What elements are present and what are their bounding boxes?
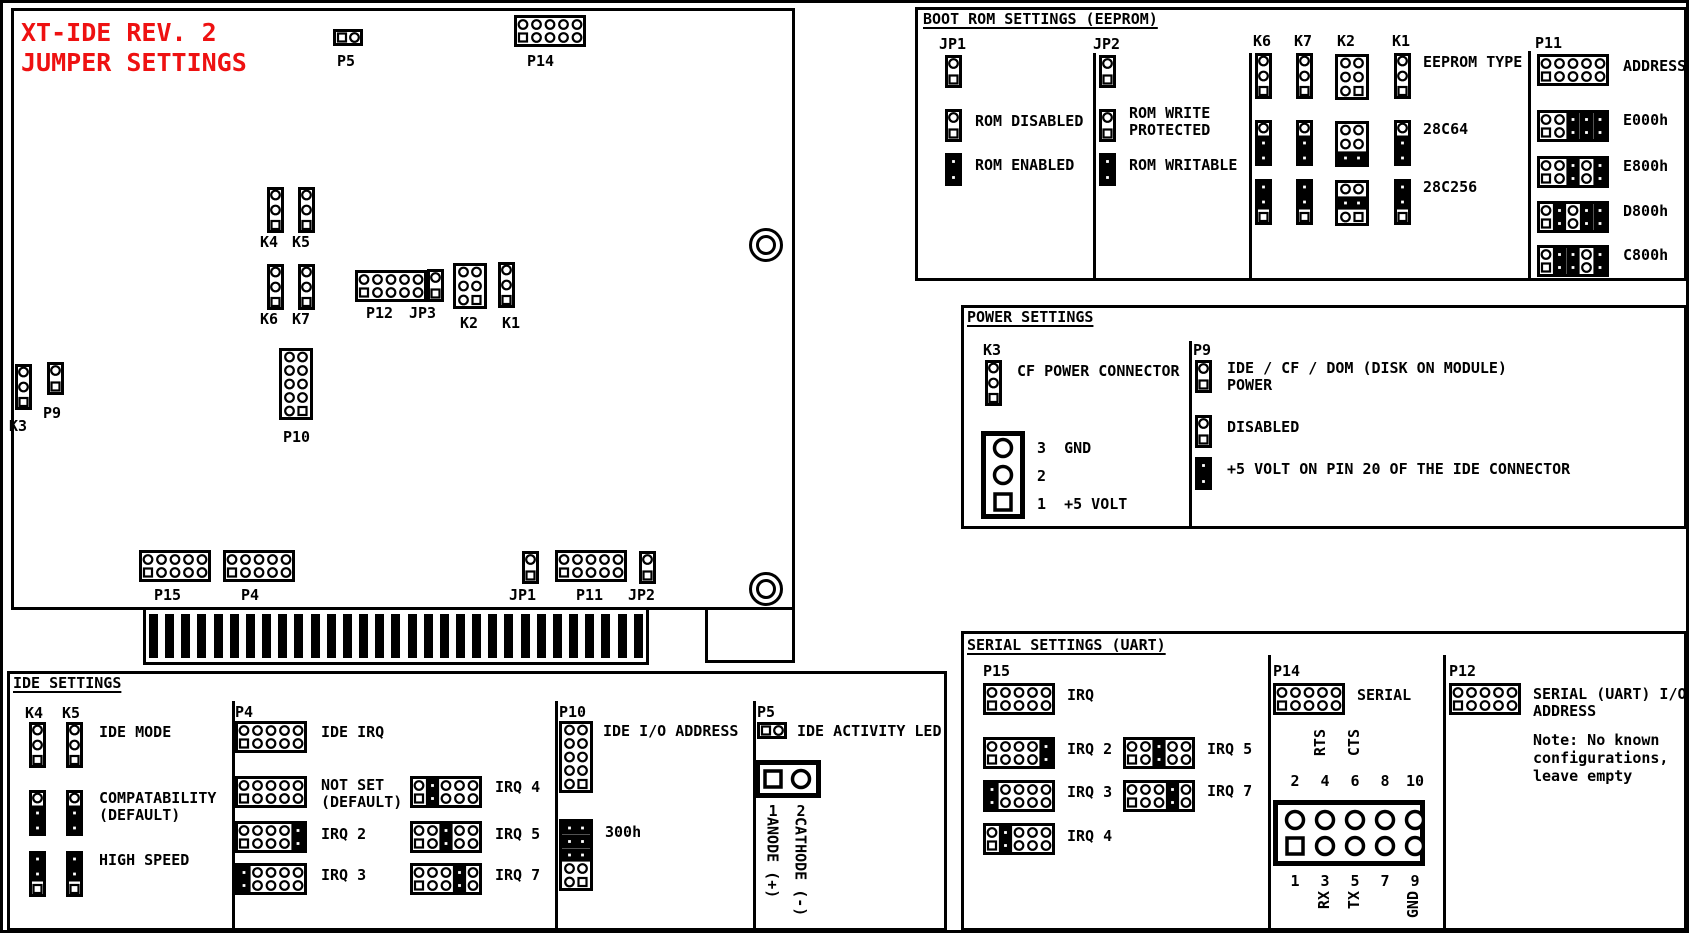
- ide-led-connector: [755, 760, 821, 798]
- boot-p11-c800h: [1537, 245, 1609, 277]
- board-header-p10: [279, 348, 313, 420]
- serial-pin-9: 9: [1410, 873, 1419, 890]
- edge-connector-tooth: [601, 614, 610, 658]
- serial-p14-connector: [1273, 800, 1425, 866]
- ide-p4-header-svg: [235, 721, 307, 753]
- edge-connector-tooth: [488, 614, 497, 658]
- ide-p4-irq4: [410, 776, 482, 808]
- serial-p15-irq5-svg: [1123, 737, 1195, 769]
- edge-connector-tooth: [504, 614, 513, 658]
- boot-label-eeprom-type: EEPROM TYPE: [1423, 54, 1522, 71]
- board-label-p9: P9: [43, 405, 61, 422]
- serial-p15-header-svg: [983, 683, 1055, 715]
- serial-label-irq5: IRQ 5: [1207, 741, 1252, 758]
- serial-p15-irq4-svg: [983, 823, 1055, 855]
- serial-label-gnd: GND: [1405, 891, 1422, 918]
- boot-jp2-writable: [1099, 153, 1116, 186]
- boot-jp2-write-protected-svg: [1099, 109, 1116, 142]
- boot-jp2-writable-svg: [1099, 153, 1116, 186]
- serial-pin-3: 3: [1320, 873, 1329, 890]
- power-label-pin1-5v: 1 +5 VOLT: [1037, 496, 1127, 513]
- serial-p15-irq7-svg: [1123, 780, 1195, 812]
- boot-k6-header-svg: [1255, 53, 1272, 99]
- board-label-p15: P15: [154, 587, 181, 604]
- board-header-p14: [514, 15, 586, 47]
- edge-connector-tooth: [343, 614, 352, 658]
- board-header-p5: [333, 29, 363, 46]
- boot-jp1-header-svg: [945, 55, 962, 88]
- boot-k7-header: [1296, 53, 1313, 99]
- boot-label-rom-enabled: ROM ENABLED: [975, 157, 1074, 174]
- serial-p12-header-svg: [1449, 683, 1521, 715]
- board-header-k6: [267, 264, 284, 310]
- board-header-k7-svg: [298, 264, 315, 310]
- edge-connector-tooth: [553, 614, 562, 658]
- serial-note-line2: configurations,: [1533, 750, 1668, 767]
- boot-p11-d800h: [1537, 201, 1609, 233]
- boot-label-jp1: JP1: [939, 36, 966, 53]
- board-header-p15: [139, 550, 211, 582]
- board-label-k4: K4: [260, 234, 278, 251]
- serial-pin-2: 2: [1290, 773, 1299, 790]
- ide-label-cathode: CATHODE (-): [792, 817, 809, 916]
- ide-p4-irq3-svg: [235, 863, 307, 895]
- boot-p11-e000h: [1537, 110, 1609, 142]
- serial-p15-irq3-svg: [983, 780, 1055, 812]
- power-p9-5v-svg: [1195, 457, 1212, 490]
- board-label-k3: K3: [9, 418, 27, 435]
- serial-p15-irq5: [1123, 737, 1195, 769]
- power-p9-disabled: [1195, 415, 1212, 448]
- power-p9-disabled-svg: [1195, 415, 1212, 448]
- ide-label-activity-led: IDE ACTIVITY LED: [797, 723, 942, 740]
- ide-k4-compat: [29, 790, 46, 836]
- boot-div-3: [1528, 51, 1531, 278]
- boot-p11-d800h-svg: [1537, 201, 1609, 233]
- serial-div-1: [1268, 655, 1271, 928]
- serial-label-p12: P12: [1449, 663, 1476, 680]
- board-header-p12-svg: [355, 270, 427, 302]
- boot-k1-header: [1394, 53, 1411, 99]
- edge-connector-tooth: [391, 614, 400, 658]
- boot-k6-28c64: [1255, 120, 1272, 166]
- boot-jp1-rom-enabled-svg: [945, 153, 962, 186]
- serial-label-irq7: IRQ 7: [1207, 783, 1252, 800]
- serial-pin-4: 4: [1320, 773, 1329, 790]
- ide-k5-compat: [66, 790, 83, 836]
- boot-p11-c800h-svg: [1537, 245, 1609, 277]
- board-header-jp1: [522, 551, 539, 584]
- boot-label-c800h: C800h: [1623, 247, 1668, 264]
- edge-connector-tooth: [165, 614, 174, 658]
- power-cf-connector: [981, 431, 1025, 519]
- board-header-k7: [298, 264, 315, 310]
- serial-div-2: [1443, 655, 1446, 928]
- ide-p4-irq3: [235, 863, 307, 895]
- power-label-pin3-gnd: 3 GND: [1037, 440, 1091, 457]
- boot-label-k1: K1: [1392, 33, 1410, 50]
- ide-label-ide-irq: IDE IRQ: [321, 724, 384, 741]
- serial-label-irq3: IRQ 3: [1067, 784, 1112, 801]
- ide-p4-irq7-svg: [410, 863, 482, 895]
- edge-connector-tooth: [424, 614, 433, 658]
- board-header-k4: [267, 187, 284, 233]
- board-header-jp1-svg: [522, 551, 539, 584]
- edge-connector-tooth: [408, 614, 417, 658]
- board-label-jp3: JP3: [409, 305, 436, 322]
- serial-panel-title: SERIAL SETTINGS (UART): [967, 637, 1166, 654]
- boot-label-28c256: 28C256: [1423, 179, 1477, 196]
- ide-p5-header-svg: [757, 722, 787, 739]
- ide-k5-header-svg: [66, 722, 83, 768]
- ide-k5-compat-svg: [66, 790, 83, 836]
- ide-p10-300h-svg: [559, 819, 593, 891]
- boot-jp2-write-protected: [1099, 109, 1116, 142]
- mounting-hole-bottom-inner: [756, 579, 776, 599]
- board-title-line2: JUMPER SETTINGS: [21, 49, 247, 77]
- edge-connector-tooth: [294, 614, 303, 658]
- board-header-p4-svg: [223, 550, 295, 582]
- ide-p10-300h: [559, 819, 593, 891]
- edge-connector-tooth: [537, 614, 546, 658]
- board-label-p4: P4: [241, 587, 259, 604]
- power-label-power: POWER: [1227, 377, 1272, 394]
- edge-connector-tooth: [618, 614, 627, 658]
- serial-label-rts: RTS: [1312, 729, 1329, 756]
- serial-p15-irq3: [983, 780, 1055, 812]
- boot-k1-28c64: [1394, 120, 1411, 166]
- board-label-k7: K7: [292, 311, 310, 328]
- ide-label-k5: K5: [62, 705, 80, 722]
- edge-connector-teeth: [149, 614, 643, 658]
- power-label-disabled: DISABLED: [1227, 419, 1299, 436]
- board-header-p9-svg: [47, 362, 64, 395]
- boot-k2-28c256-svg: [1335, 180, 1369, 226]
- ide-label-not-set-default: (DEFAULT): [321, 794, 402, 811]
- board-label-p5: P5: [337, 53, 355, 70]
- ide-div-2: [555, 701, 558, 928]
- boot-jp1-rom-enabled: [945, 153, 962, 186]
- board-label-k2: K2: [460, 315, 478, 332]
- boot-jp1-rom-disabled: [945, 109, 962, 142]
- power-label-5v-pin20: +5 VOLT ON PIN 20 OF THE IDE CONNECTOR: [1227, 461, 1570, 478]
- serial-pin-5: 5: [1350, 873, 1359, 890]
- boot-k1-28c64-svg: [1394, 120, 1411, 166]
- ide-label-ide-mode: IDE MODE: [99, 724, 171, 741]
- board-header-p14-svg: [514, 15, 586, 47]
- boot-jp1-rom-disabled-svg: [945, 109, 962, 142]
- boot-div-1: [1093, 53, 1096, 278]
- boot-p11-e800h-svg: [1537, 156, 1609, 188]
- board-label-jp2: JP2: [628, 587, 655, 604]
- serial-label-irq4: IRQ 4: [1067, 828, 1112, 845]
- edge-connector-tooth: [149, 614, 158, 658]
- boot-jp1-header: [945, 55, 962, 88]
- boot-k2-28c64-svg: [1335, 121, 1369, 167]
- boot-k2-header: [1335, 54, 1369, 100]
- board-header-p11: [555, 550, 627, 582]
- serial-label-rx: RX: [1316, 891, 1333, 909]
- boot-p11-header: [1537, 54, 1609, 86]
- ide-label-io-address: IDE I/O ADDRESS: [603, 723, 738, 740]
- serial-p15-irq2: [983, 737, 1055, 769]
- boot-k7-28c256: [1296, 179, 1313, 225]
- ide-k4-highspeed-svg: [29, 851, 46, 897]
- board-header-k3-svg: [15, 364, 32, 410]
- serial-label-p14: P14: [1273, 663, 1300, 680]
- board-header-p5-svg: [333, 29, 363, 46]
- edge-connector-tooth: [472, 614, 481, 658]
- boot-label-d800h: D800h: [1623, 203, 1668, 220]
- boot-k2-28c256: [1335, 180, 1369, 226]
- boot-label-k2: K2: [1337, 33, 1355, 50]
- edge-connector-tooth: [359, 614, 368, 658]
- serial-label-irq2: IRQ 2: [1067, 741, 1112, 758]
- boot-k1-header-svg: [1394, 53, 1411, 99]
- boot-div-2: [1249, 53, 1252, 278]
- serial-label-p15: P15: [983, 663, 1010, 680]
- ide-p4-notset: [235, 776, 307, 808]
- board-header-p12: [355, 270, 427, 302]
- edge-connector-tooth: [230, 614, 239, 658]
- serial-pin-1: 1: [1290, 873, 1299, 890]
- edge-connector-tooth: [375, 614, 384, 658]
- serial-label-cts: CTS: [1346, 729, 1363, 756]
- serial-note-line1: Note: No known: [1533, 732, 1659, 749]
- ide-label-irq5: IRQ 5: [495, 826, 540, 843]
- boot-p11-e000h-svg: [1537, 110, 1609, 142]
- board-bracket-tab: [705, 607, 795, 663]
- ide-label-p4: P4: [235, 704, 253, 721]
- board-header-p11-svg: [555, 550, 627, 582]
- boot-k2-header-svg: [1335, 54, 1369, 100]
- boot-label-address: ADDRESS: [1623, 58, 1686, 75]
- ide-label-not-set: NOT SET: [321, 777, 384, 794]
- board-label-k1: K1: [502, 315, 520, 332]
- edge-connector-tooth: [634, 614, 643, 658]
- ide-k4-header-svg: [29, 722, 46, 768]
- power-label-k3: K3: [983, 342, 1001, 359]
- power-k3-header-svg: [985, 360, 1002, 406]
- edge-connector-tooth: [181, 614, 190, 658]
- boot-k6-28c64-svg: [1255, 120, 1272, 166]
- power-div-1: [1189, 341, 1192, 526]
- board-header-k4-svg: [267, 187, 284, 233]
- board-header-p9: [47, 362, 64, 395]
- ide-label-high-speed: HIGH SPEED: [99, 852, 189, 869]
- edge-connector-tooth: [197, 614, 206, 658]
- ide-label-compatability: COMPATABILITY: [99, 790, 216, 807]
- boot-panel-title: BOOT ROM SETTINGS (EEPROM): [923, 11, 1158, 28]
- ide-p4-notset-svg: [235, 776, 307, 808]
- edge-connector-tooth: [569, 614, 578, 658]
- serial-label-uart-io: SERIAL (UART) I/O: [1533, 686, 1687, 703]
- boot-label-k7: K7: [1294, 33, 1312, 50]
- power-label-cf-power: CF POWER CONNECTOR: [1017, 363, 1180, 380]
- boot-label-k6: K6: [1253, 33, 1271, 50]
- board-outline: [11, 8, 795, 610]
- ide-label-irq4: IRQ 4: [495, 779, 540, 796]
- power-label-p9: P9: [1193, 342, 1211, 359]
- ide-label-k4: K4: [25, 705, 43, 722]
- ide-p4-irq4-svg: [410, 776, 482, 808]
- boot-k7-28c256-svg: [1296, 179, 1313, 225]
- boot-label-rom-disabled: ROM DISABLED: [975, 113, 1083, 130]
- board-header-k1: [498, 262, 515, 308]
- boot-jp2-header: [1099, 55, 1116, 88]
- ide-p4-irq5-svg: [410, 821, 482, 853]
- board-header-jp2-svg: [639, 551, 656, 584]
- ide-label-irq3: IRQ 3: [321, 867, 366, 884]
- ide-k5-highspeed-svg: [66, 851, 83, 897]
- boot-jp2-header-svg: [1099, 55, 1116, 88]
- boot-label-rom-writable: ROM WRITABLE: [1129, 157, 1237, 174]
- ide-k4-header: [29, 722, 46, 768]
- boot-k6-header: [1255, 53, 1272, 99]
- serial-label-tx: TX: [1346, 891, 1363, 909]
- boot-p11-header-svg: [1537, 54, 1609, 86]
- serial-p12-header: [1449, 683, 1521, 715]
- ide-k4-compat-svg: [29, 790, 46, 836]
- boot-label-protected: PROTECTED: [1129, 122, 1210, 139]
- ide-p5-header: [757, 722, 787, 739]
- serial-pin-8: 8: [1380, 773, 1389, 790]
- serial-pin-6: 6: [1350, 773, 1359, 790]
- ide-div-3: [753, 701, 756, 928]
- serial-p15-irq7: [1123, 780, 1195, 812]
- boot-label-e000h: E000h: [1623, 112, 1668, 129]
- boot-k6-28c256-svg: [1255, 179, 1272, 225]
- ide-p4-irq2: [235, 821, 307, 853]
- serial-p15-irq4: [983, 823, 1055, 855]
- board-label-p10: P10: [283, 429, 310, 446]
- boot-k7-28c64: [1296, 120, 1313, 166]
- serial-p14-header: [1273, 683, 1345, 715]
- ide-p4-irq7: [410, 863, 482, 895]
- power-p9-header: [1195, 360, 1212, 393]
- edge-connector-tooth: [278, 614, 287, 658]
- board-header-jp3-svg: [427, 269, 444, 302]
- ide-p10-header-svg: [559, 721, 593, 793]
- edge-connector-tooth: [311, 614, 320, 658]
- edge-connector-tooth: [521, 614, 530, 658]
- boot-k7-28c64-svg: [1296, 120, 1313, 166]
- board-header-jp2: [639, 551, 656, 584]
- board-header-k5-svg: [298, 187, 315, 233]
- board-label-jp1: JP1: [509, 587, 536, 604]
- edge-connector-tooth: [262, 614, 271, 658]
- serial-pin-7: 7: [1380, 873, 1389, 890]
- boot-k1-28c256: [1394, 179, 1411, 225]
- ide-label-compat-default: (DEFAULT): [99, 807, 180, 824]
- ide-p10-header: [559, 721, 593, 793]
- board-header-k2-svg: [453, 263, 487, 309]
- board-header-jp3: [427, 269, 444, 302]
- edge-connector-tooth: [327, 614, 336, 658]
- ide-panel-title: IDE SETTINGS: [13, 675, 121, 692]
- ide-k4-highspeed: [29, 851, 46, 897]
- ide-led-connector-svg: [755, 760, 821, 798]
- boot-k1-28c256-svg: [1394, 179, 1411, 225]
- board-label-p14: P14: [527, 53, 554, 70]
- board-header-k5: [298, 187, 315, 233]
- serial-label-irq: IRQ: [1067, 687, 1094, 704]
- board-header-k2: [453, 263, 487, 309]
- edge-connector-tooth: [440, 614, 449, 658]
- serial-pin-10: 10: [1406, 773, 1424, 790]
- serial-label-serial: SERIAL: [1357, 687, 1411, 704]
- ide-k5-highspeed: [66, 851, 83, 897]
- boot-label-p11: P11: [1535, 35, 1562, 52]
- board-header-p10-svg: [279, 348, 313, 420]
- power-label-pin2: 2: [1037, 468, 1046, 485]
- mounting-hole-top-inner: [756, 235, 776, 255]
- ide-p4-header: [235, 721, 307, 753]
- board-header-k1-svg: [498, 262, 515, 308]
- edge-connector-tooth: [246, 614, 255, 658]
- ide-label-p10: P10: [559, 704, 586, 721]
- serial-p15-header: [983, 683, 1055, 715]
- board-label-p11: P11: [576, 587, 603, 604]
- power-p9-header-svg: [1195, 360, 1212, 393]
- boot-label-rom-write: ROM WRITE: [1129, 105, 1210, 122]
- boot-k7-header-svg: [1296, 53, 1313, 99]
- ide-label-anode: ANODE (+): [764, 817, 781, 898]
- power-cf-connector-svg: [981, 431, 1025, 519]
- boot-k6-28c256: [1255, 179, 1272, 225]
- serial-p15-irq2-svg: [983, 737, 1055, 769]
- ide-label-p5: P5: [757, 704, 775, 721]
- board-title-line1: XT-IDE REV. 2: [21, 19, 217, 47]
- serial-label-address: ADDRESS: [1533, 703, 1596, 720]
- board-label-p12: P12: [366, 305, 393, 322]
- board-header-p15-svg: [139, 550, 211, 582]
- ide-k5-header: [66, 722, 83, 768]
- edge-connector-tooth: [214, 614, 223, 658]
- ide-label-irq2: IRQ 2: [321, 826, 366, 843]
- boot-k2-28c64: [1335, 121, 1369, 167]
- power-k3-header: [985, 360, 1002, 406]
- serial-p14-header-svg: [1273, 683, 1345, 715]
- boot-p11-e800h: [1537, 156, 1609, 188]
- edge-connector-tooth: [456, 614, 465, 658]
- jumper-settings-diagram: XT-IDE REV. 2JUMPER SETTINGSP5P14K4K5K6K…: [0, 0, 1689, 933]
- boot-label-e800h: E800h: [1623, 158, 1668, 175]
- serial-note-line3: leave empty: [1533, 768, 1632, 785]
- power-p9-5v: [1195, 457, 1212, 490]
- edge-connector-tooth: [585, 614, 594, 658]
- board-label-k5: K5: [292, 234, 310, 251]
- board-label-k6: K6: [260, 311, 278, 328]
- boot-label-28c64: 28C64: [1423, 121, 1468, 138]
- serial-p14-connector-svg: [1273, 800, 1425, 866]
- board-header-p4: [223, 550, 295, 582]
- board-header-k3: [15, 364, 32, 410]
- boot-label-jp2: JP2: [1093, 36, 1120, 53]
- ide-label-irq7: IRQ 7: [495, 867, 540, 884]
- ide-label-300h: 300h: [605, 824, 641, 841]
- ide-p4-irq2-svg: [235, 821, 307, 853]
- ide-p4-irq5: [410, 821, 482, 853]
- power-panel-title: POWER SETTINGS: [967, 309, 1093, 326]
- power-label-ide-cf-dom: IDE / CF / DOM (DISK ON MODULE): [1227, 360, 1507, 377]
- board-header-k6-svg: [267, 264, 284, 310]
